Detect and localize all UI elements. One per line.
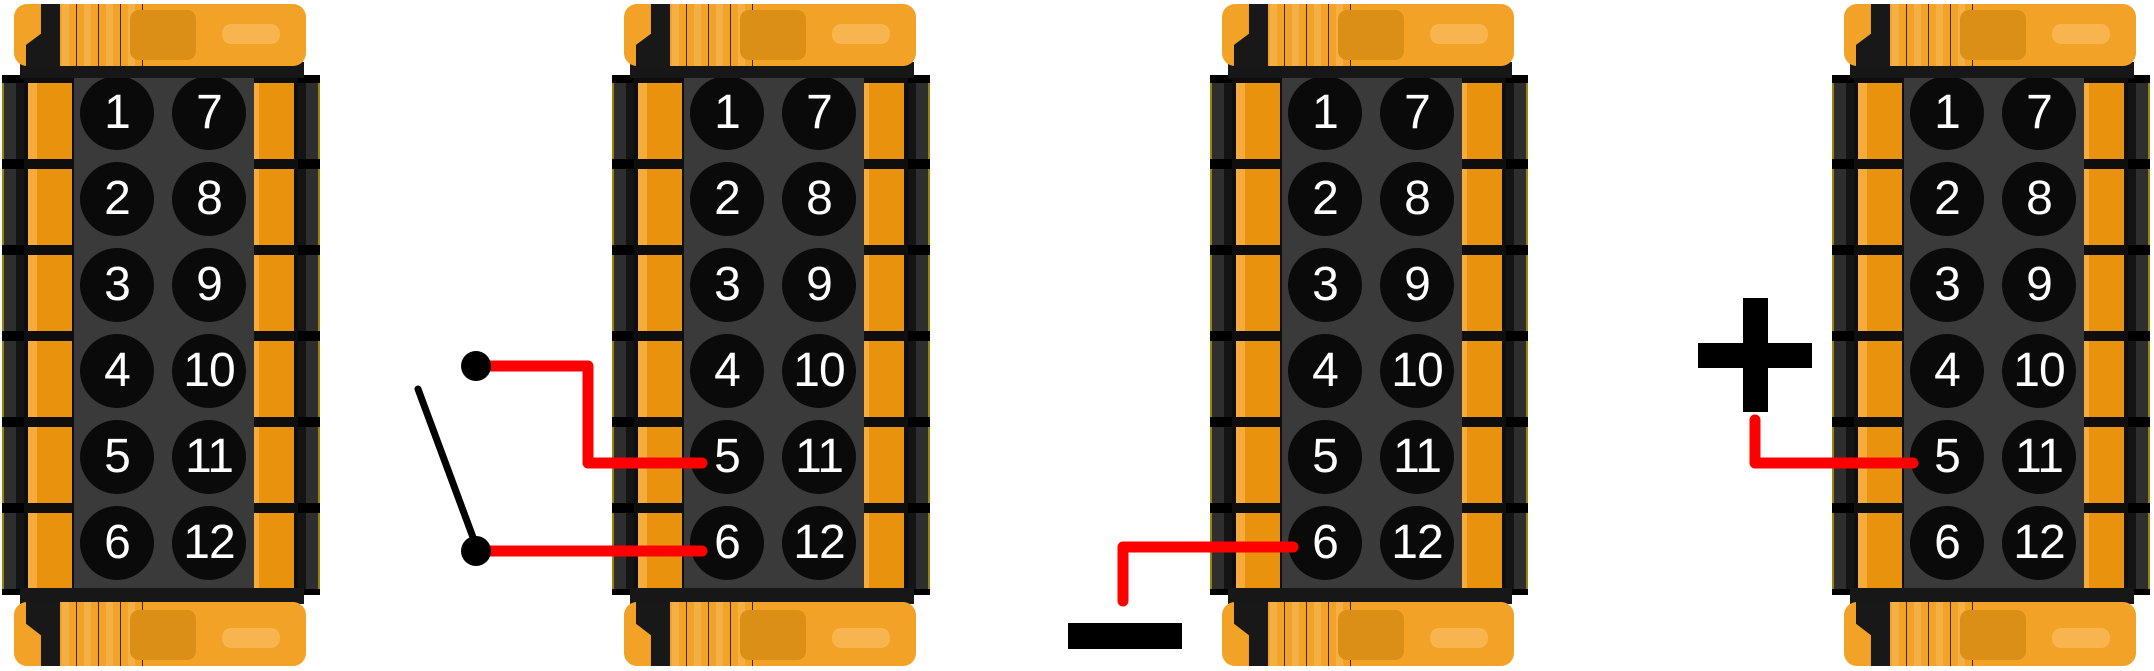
pin-socket: 7 — [782, 76, 856, 150]
pin-socket: 8 — [2002, 162, 2076, 236]
pin-socket: 10 — [172, 334, 246, 408]
lock-tabs-left — [1236, 83, 1280, 589]
top-cap — [1222, 4, 1514, 66]
pin-socket: 11 — [2002, 420, 2076, 494]
cap-latch-window — [130, 610, 196, 660]
pin-socket: 8 — [1380, 162, 1454, 236]
pin-socket: 12 — [172, 506, 246, 580]
connector-3: 123456 789101112 — [1210, 0, 1528, 671]
pin-socket: 12 — [2002, 506, 2076, 580]
bottom-cap — [624, 602, 916, 666]
cap-release-clip-icon — [1856, 4, 1890, 66]
housing-rail-left — [612, 75, 634, 595]
connector-housing: 123456 789101112 — [1210, 75, 1528, 595]
pin-socket: 5 — [690, 420, 764, 494]
pin-socket: 1 — [1910, 76, 1984, 150]
cap-release-clip-icon — [26, 4, 60, 66]
pin-socket: 5 — [80, 420, 154, 494]
pin-socket: 5 — [1288, 420, 1362, 494]
pin-socket: 7 — [1380, 76, 1454, 150]
lock-tabs-right — [860, 83, 904, 589]
lock-tabs-left — [638, 83, 682, 589]
cap-release-clip-icon — [636, 4, 670, 66]
pin-socket: 5 — [1910, 420, 1984, 494]
cap-release-clip-icon — [636, 602, 670, 666]
pin-socket: 6 — [1288, 506, 1362, 580]
pin-socket: 11 — [172, 420, 246, 494]
pin-socket: 9 — [2002, 248, 2076, 322]
switch-terminal-bottom — [461, 536, 491, 566]
lock-tabs-left — [1858, 83, 1902, 589]
bottom-cap — [1222, 602, 1514, 666]
plus-symbol-icon — [1743, 298, 1768, 412]
cap-slot — [222, 24, 280, 44]
switch-terminal-top — [461, 351, 491, 381]
lock-tabs-right — [1458, 83, 1502, 589]
top-cap — [14, 4, 306, 66]
cap-slot — [1430, 628, 1488, 648]
pin-column-left: 123456 — [690, 76, 764, 580]
pin-socket: 4 — [690, 334, 764, 408]
pin-socket: 8 — [172, 162, 246, 236]
pin-socket: 11 — [782, 420, 856, 494]
pin-panel: 123456 789101112 — [1904, 75, 2084, 595]
cap-latch-window — [1338, 610, 1404, 660]
switch-lever — [418, 389, 474, 540]
pin-socket: 2 — [1910, 162, 1984, 236]
cap-latch-window — [740, 10, 806, 60]
pin-socket: 12 — [1380, 506, 1454, 580]
pin-socket: 9 — [782, 248, 856, 322]
bottom-cap — [14, 602, 306, 666]
connector-housing: 123456 789101112 — [612, 75, 930, 595]
wiring-overlay — [0, 0, 2154, 671]
pin-column-right: 789101112 — [172, 76, 246, 580]
pin-socket: 10 — [782, 334, 856, 408]
pin-socket: 8 — [782, 162, 856, 236]
lock-tabs-left — [28, 83, 72, 589]
cap-latch-window — [1338, 10, 1404, 60]
pin-socket: 4 — [1288, 334, 1362, 408]
pin-socket: 9 — [1380, 248, 1454, 322]
pin-socket: 6 — [690, 506, 764, 580]
pin-socket: 2 — [690, 162, 764, 236]
connector-housing: 123456 789101112 — [1832, 75, 2150, 595]
housing-rail-left — [1210, 75, 1232, 595]
pin-socket: 3 — [80, 248, 154, 322]
cap-latch-window — [130, 10, 196, 60]
connector-housing: 123456 789101112 — [2, 75, 320, 595]
pin-socket: 6 — [1910, 506, 1984, 580]
pin-panel: 123456 789101112 — [1282, 75, 1462, 595]
pin-column-right: 789101112 — [1380, 76, 1454, 580]
connector-4: 123456 789101112 — [1832, 0, 2150, 671]
cap-release-clip-icon — [26, 602, 60, 666]
housing-rail-right — [1506, 75, 1528, 595]
cap-slot — [2052, 24, 2110, 44]
housing-rail-right — [908, 75, 930, 595]
pin-socket: 12 — [782, 506, 856, 580]
cap-latch-window — [740, 610, 806, 660]
pin-socket: 3 — [1288, 248, 1362, 322]
pin-socket: 3 — [1910, 248, 1984, 322]
top-cap — [1844, 4, 2136, 66]
connector-2: 123456 789101112 — [612, 0, 930, 671]
housing-rail-left — [1832, 75, 1854, 595]
pin-socket: 2 — [80, 162, 154, 236]
housing-rail-right — [2128, 75, 2150, 595]
pin-panel: 123456 789101112 — [684, 75, 864, 595]
pin-socket: 1 — [690, 76, 764, 150]
pin-column-right: 789101112 — [782, 76, 856, 580]
cap-release-clip-icon — [1234, 4, 1268, 66]
pin-socket: 2 — [1288, 162, 1362, 236]
cap-latch-window — [1960, 10, 2026, 60]
plus-symbol-icon — [1698, 343, 1812, 368]
pin-column-left: 123456 — [1288, 76, 1362, 580]
cap-slot — [832, 24, 890, 44]
pin-column-left: 123456 — [1910, 76, 1984, 580]
pin-socket: 11 — [1380, 420, 1454, 494]
minus-symbol-icon — [1068, 623, 1182, 649]
cap-release-clip-icon — [1234, 602, 1268, 666]
pin-socket: 10 — [1380, 334, 1454, 408]
cap-release-clip-icon — [1856, 602, 1890, 666]
pin-socket: 1 — [1288, 76, 1362, 150]
pin-column-left: 123456 — [80, 76, 154, 580]
pin-socket: 10 — [2002, 334, 2076, 408]
pin-column-right: 789101112 — [2002, 76, 2076, 580]
cap-slot — [832, 628, 890, 648]
cap-slot — [1430, 24, 1488, 44]
pin-panel: 123456 789101112 — [74, 75, 254, 595]
pin-socket: 3 — [690, 248, 764, 322]
top-cap — [624, 4, 916, 66]
cap-slot — [2052, 628, 2110, 648]
pin-socket: 9 — [172, 248, 246, 322]
pin-socket: 7 — [2002, 76, 2076, 150]
pin-socket: 7 — [172, 76, 246, 150]
housing-rail-right — [298, 75, 320, 595]
connector-1: 123456 789101112 — [2, 0, 320, 671]
housing-rail-left — [2, 75, 24, 595]
lock-tabs-right — [250, 83, 294, 589]
cap-latch-window — [1960, 610, 2026, 660]
pin-socket: 4 — [1910, 334, 1984, 408]
bottom-cap — [1844, 602, 2136, 666]
pin-socket: 6 — [80, 506, 154, 580]
cap-slot — [222, 628, 280, 648]
wiring-diagram: 123456 789101112 123456 7891 — [0, 0, 2154, 671]
pin-socket: 4 — [80, 334, 154, 408]
lock-tabs-right — [2080, 83, 2124, 589]
pin-socket: 1 — [80, 76, 154, 150]
